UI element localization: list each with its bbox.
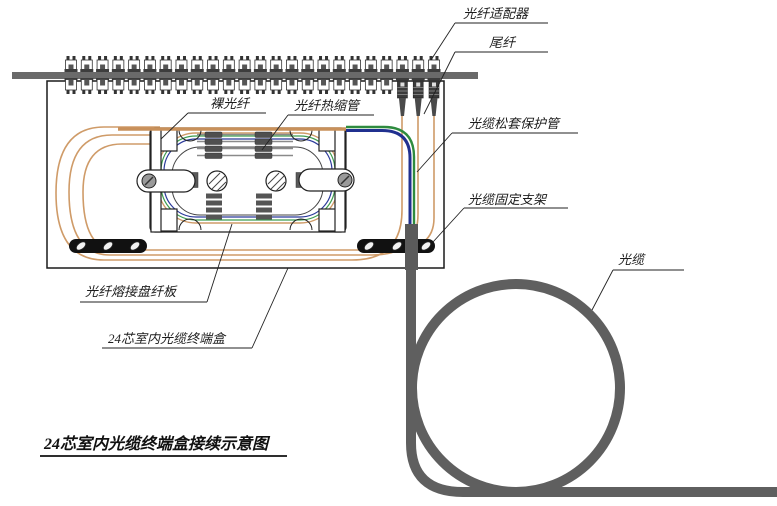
splice-tray: [137, 128, 354, 232]
tray-mount-left: [137, 170, 195, 192]
cable-loop-circle: [412, 284, 620, 492]
label-bare-fiber: 裸光纤: [210, 96, 251, 111]
label-cable: 光缆: [618, 252, 646, 267]
adapter-panel-bar: [12, 72, 478, 79]
leader-line-cable: [592, 270, 613, 310]
label-termination-box: 24芯室内光缆终端盒: [108, 331, 227, 346]
tray-screw-hatched: [207, 171, 227, 191]
leader-line-fiber-adapter: [431, 23, 455, 60]
label-fiber-adapter: 光纤适配器: [463, 6, 529, 21]
left-fixing-bracket: [69, 239, 147, 253]
screenshot-root: 光纤适配器 尾纤 裸光纤 光纤热缩管 光缆松套保护管 光缆固定支架 光缆 光纤熔…: [0, 0, 777, 506]
tray-screw-hatched: [266, 171, 286, 191]
leader-line-termination-box: [252, 268, 288, 348]
label-heat-shrink: 光纤热缩管: [294, 98, 361, 113]
label-pigtail: 尾纤: [489, 35, 517, 50]
cable-coil: [411, 262, 777, 492]
diagram-canvas: 光纤适配器 尾纤 裸光纤 光纤热缩管 光缆松套保护管 光缆固定支架 光缆 光纤熔…: [0, 0, 777, 506]
right-fixing-bracket: [357, 239, 435, 253]
label-loose-tube: 光缆松套保护管: [468, 116, 561, 131]
label-splice-tray: 光纤熔接盘纤板: [85, 284, 178, 299]
tray-mount-right: [299, 169, 354, 191]
cable-entry-stub: [405, 224, 418, 270]
page-title: 24芯室内光缆终端盒接续示意图: [43, 435, 271, 453]
label-fixing-bracket: 光缆固定支架: [468, 192, 548, 207]
